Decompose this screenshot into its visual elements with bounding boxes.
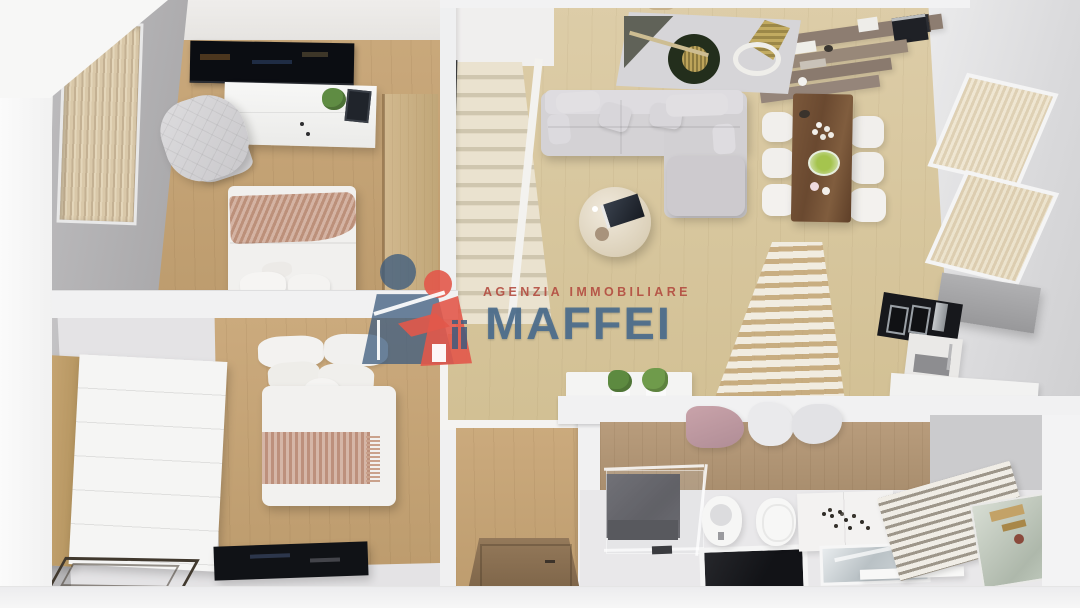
tv-screen-glow	[302, 52, 328, 57]
table-flowers	[816, 122, 822, 128]
towel-white	[748, 402, 794, 446]
cabinet-handle	[306, 132, 310, 136]
bed2-pillow	[324, 333, 389, 366]
glass-table-inner	[60, 563, 180, 588]
entry-door-handle	[545, 560, 555, 563]
outer-bottom-wall	[0, 586, 1080, 608]
outer-top-wall	[440, 0, 970, 8]
dining-chair	[848, 188, 886, 222]
bed2-blanket-fringe	[366, 436, 380, 482]
table-cup	[822, 187, 830, 195]
shelf-deco-white	[857, 17, 879, 33]
bathroom-right-wall	[1042, 415, 1080, 608]
rug-white-ring	[733, 42, 781, 76]
bedrooms-divider-wall	[0, 290, 458, 319]
mirror-red-deco	[1014, 534, 1024, 544]
floor-mat-dark	[652, 546, 672, 555]
wardrobe-dresser	[69, 354, 228, 571]
table-green-plate	[808, 150, 840, 176]
table-dot	[592, 206, 598, 212]
bedroom2-flat-tv	[213, 541, 368, 580]
floorplan-render: AGENZIA IMMOBILIARE MAFFEI	[0, 0, 1080, 608]
bed2-blanket	[262, 432, 370, 484]
bed1-sheet-fold	[230, 242, 356, 244]
table-bowl	[595, 227, 609, 241]
entry-door-panel-line	[480, 544, 572, 588]
sofa-chaise-seat	[667, 156, 745, 216]
dining-chair	[848, 152, 884, 184]
green-plant	[608, 370, 632, 392]
sofa-seam-v	[620, 100, 622, 154]
shelf-deco-mug	[798, 77, 807, 86]
vanity-knob	[840, 512, 844, 516]
towel-pink	[686, 406, 744, 448]
table-cup	[810, 182, 819, 191]
toilet-lid-seam	[762, 504, 794, 542]
bidet-basin	[710, 504, 732, 526]
photo-frame	[344, 89, 371, 123]
stair-landing	[450, 0, 554, 66]
cabinet-plant	[322, 88, 346, 110]
shower-glass-pane	[606, 470, 704, 554]
cabinet-handle	[300, 122, 304, 126]
tv-screen-glow	[252, 60, 292, 64]
sofa-pillow	[555, 90, 600, 113]
bidet-faucet	[718, 532, 724, 540]
sofa-arm-pillow	[546, 113, 571, 145]
sofa-seam-h	[548, 126, 740, 128]
dining-chair	[762, 112, 796, 142]
dark-branch-plant	[822, 512, 826, 516]
tv-screen-glow	[200, 54, 230, 60]
vanity-knob	[852, 514, 856, 518]
sofa-pillow	[666, 93, 729, 117]
green-plant	[642, 368, 668, 392]
dining-chair	[848, 116, 884, 148]
shelf-deco-dark	[824, 45, 833, 52]
